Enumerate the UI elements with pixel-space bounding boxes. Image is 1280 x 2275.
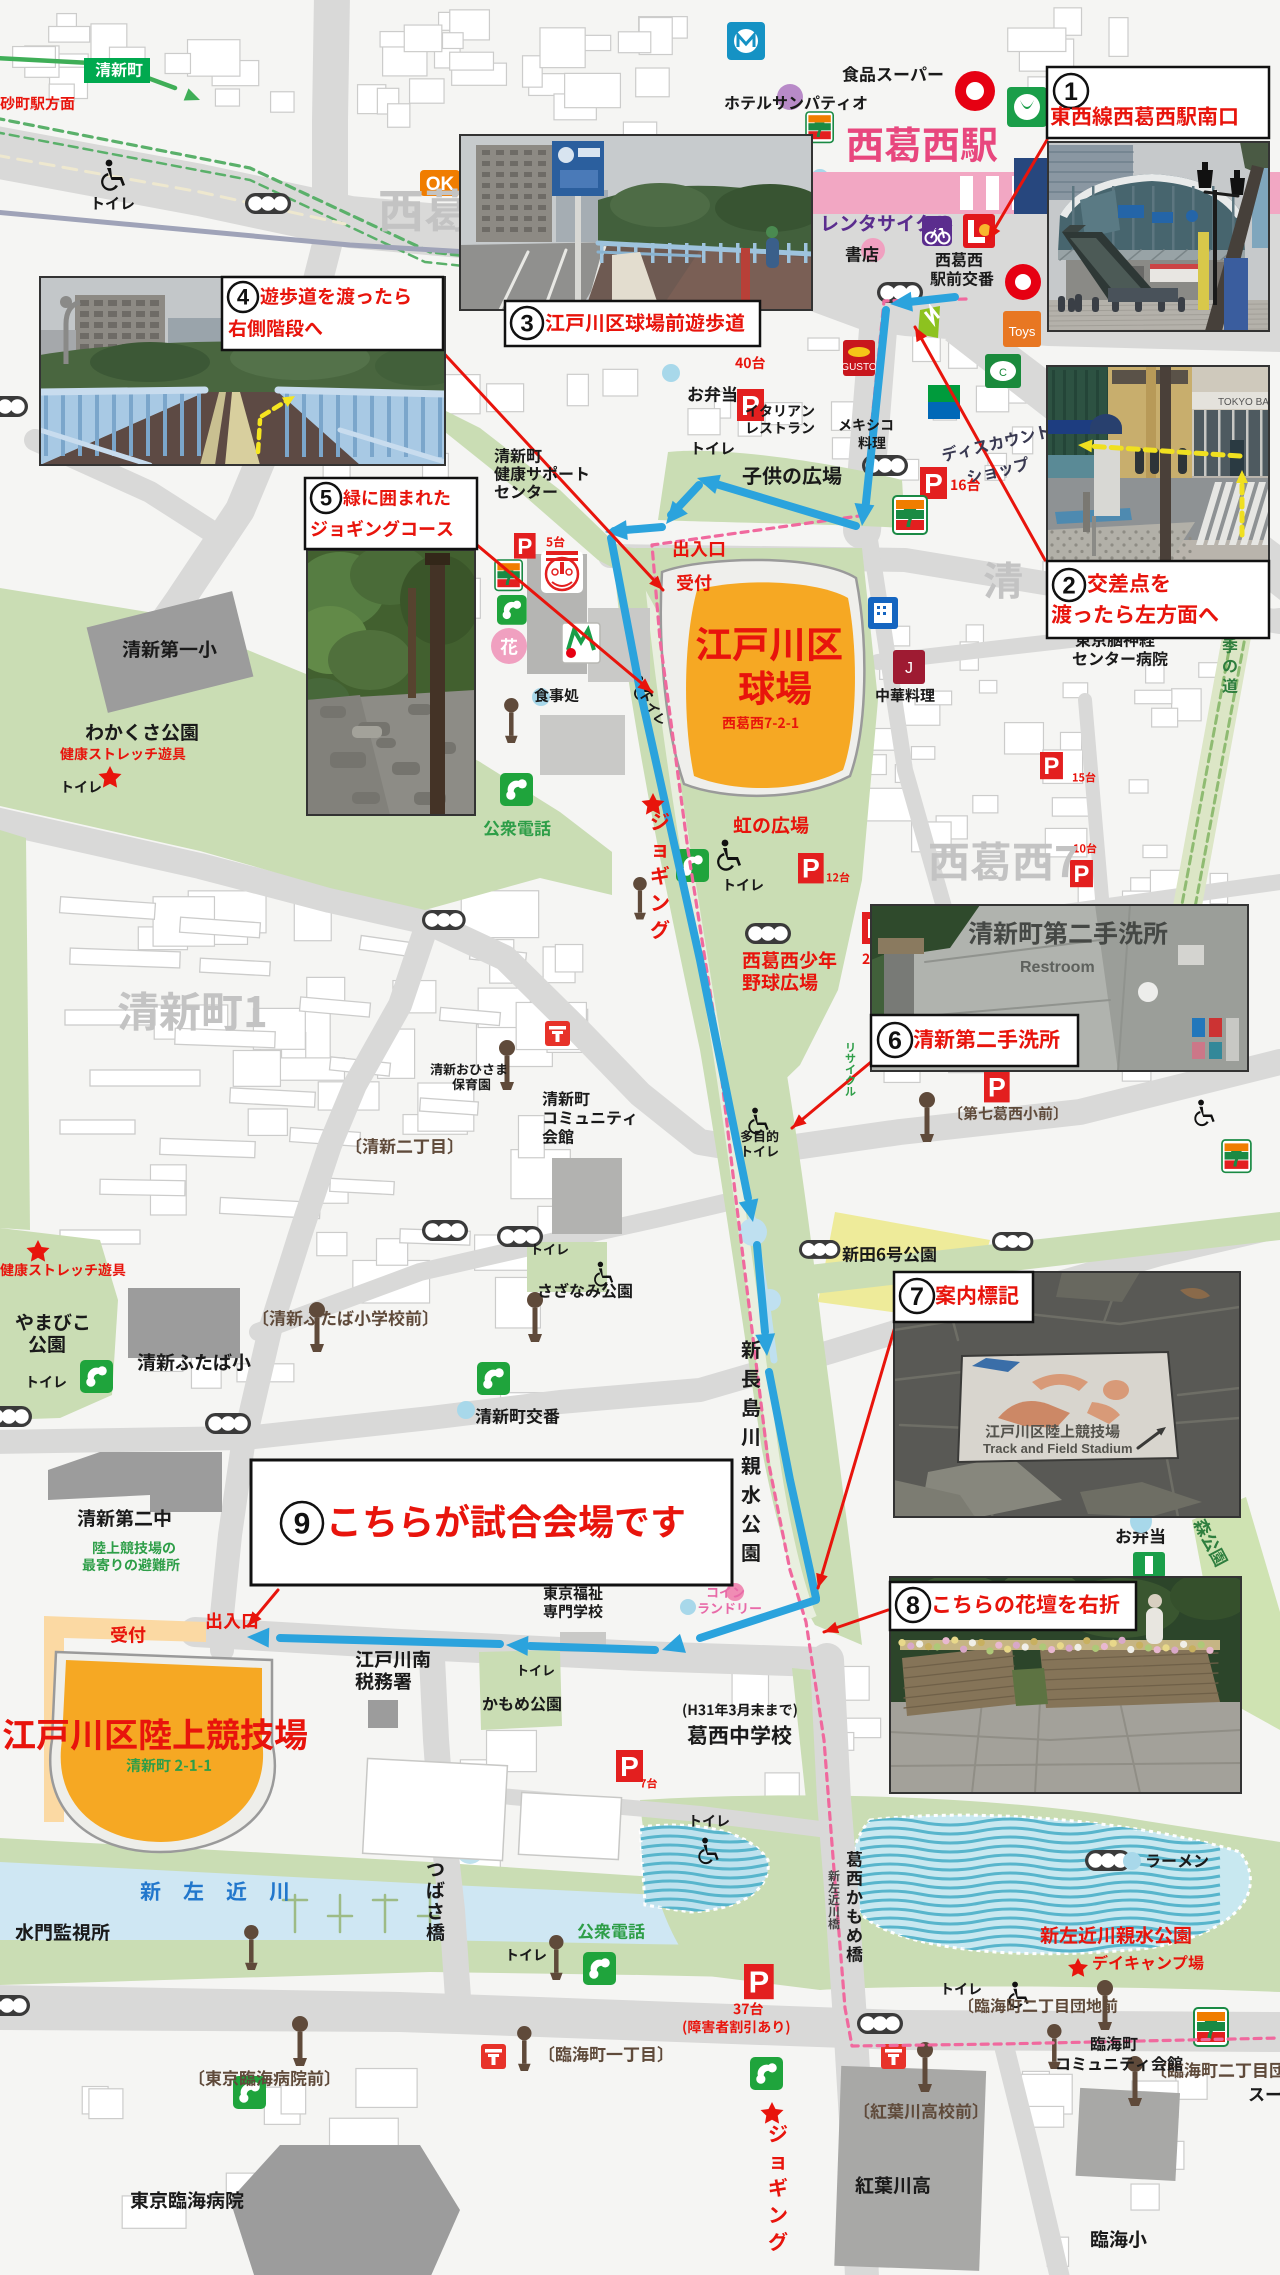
svg-text:7: 7 — [903, 503, 917, 533]
svg-text:J: J — [905, 660, 913, 677]
svg-text:3: 3 — [520, 310, 533, 337]
svg-text:Restroom: Restroom — [1020, 959, 1095, 976]
svg-text:TOKYO BAY: TOKYO BAY — [1218, 397, 1275, 408]
svg-text:C: C — [999, 367, 1007, 379]
svg-text:P: P — [741, 390, 760, 421]
svg-text:5: 5 — [320, 486, 332, 511]
svg-text:P: P — [620, 1751, 639, 1782]
svg-text:4: 4 — [237, 285, 250, 310]
svg-text:P: P — [517, 534, 532, 559]
svg-text:8: 8 — [906, 1592, 920, 1620]
svg-text:GUSTO: GUSTO — [841, 362, 877, 373]
svg-text:Toys: Toys — [1009, 324, 1036, 339]
svg-text:7: 7 — [1230, 1146, 1242, 1171]
svg-text:P: P — [924, 468, 943, 499]
svg-text:Track and Field Stadium: Track and Field Stadium — [983, 1441, 1133, 1456]
svg-text:P: P — [1044, 753, 1060, 780]
svg-text:2: 2 — [1062, 572, 1075, 599]
svg-text:9: 9 — [294, 1508, 311, 1541]
svg-text:P: P — [749, 1965, 770, 2000]
svg-text:P: P — [1074, 861, 1090, 888]
svg-text:7: 7 — [814, 119, 826, 142]
svg-text:P: P — [988, 1073, 1006, 1103]
svg-text:P: P — [802, 854, 820, 884]
svg-text:7: 7 — [910, 1283, 924, 1311]
svg-text:1: 1 — [1064, 78, 1078, 106]
svg-text:6: 6 — [888, 1027, 902, 1055]
